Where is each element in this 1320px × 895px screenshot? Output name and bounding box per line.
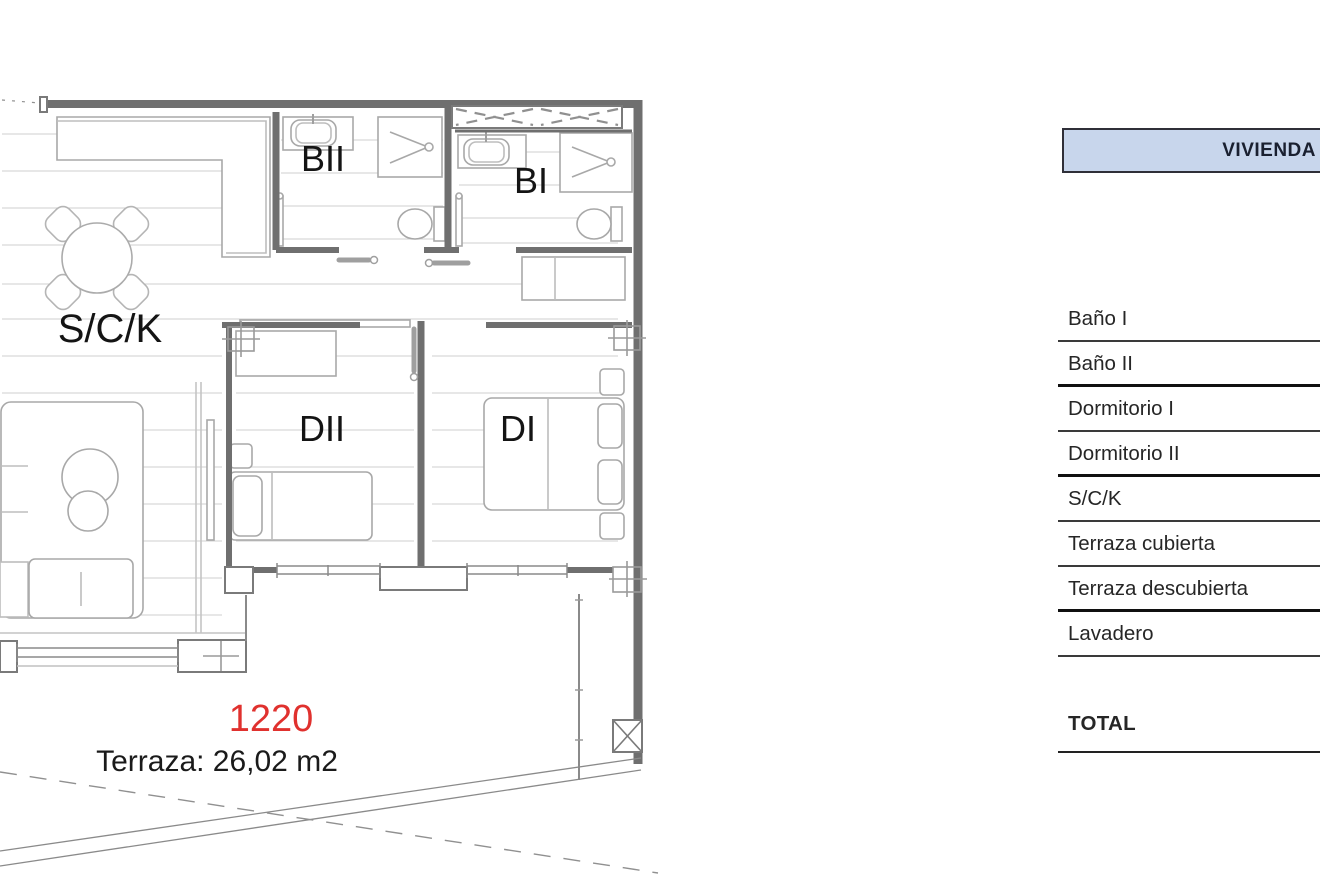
table-row-total: TOTAL — [1058, 702, 1320, 753]
dresser — [236, 331, 336, 376]
nightstand — [600, 513, 624, 539]
nightstand — [600, 369, 624, 395]
room-label-bed2: DII — [299, 408, 345, 449]
bedroom2-door — [411, 329, 418, 381]
table-row: Baño II — [1058, 342, 1320, 387]
bathroom2-door — [339, 257, 378, 264]
pillow — [598, 460, 622, 504]
shower — [378, 117, 442, 177]
bedroom1-window — [467, 563, 567, 578]
bedroom1-furniture — [484, 369, 624, 539]
drain-box — [613, 720, 642, 752]
table-row: Dormitorio I — [1058, 387, 1320, 432]
table-row: Terraza cubierta — [1058, 522, 1320, 567]
terrace-area-note: Terraza: 26,02 m2 — [96, 745, 338, 778]
table-row: Dormitorio II — [1058, 432, 1320, 477]
towel-rail — [456, 193, 462, 246]
bathroom1-door — [426, 260, 469, 267]
room-label-bath2: BII — [301, 138, 345, 179]
bedroom2-window — [277, 563, 380, 578]
table-row: Baño I — [1058, 297, 1320, 342]
pillow — [233, 476, 262, 536]
shower — [560, 133, 632, 192]
terrace — [0, 594, 642, 866]
dining-table — [62, 223, 132, 293]
unit-number: 1220 — [229, 698, 314, 740]
living-window — [17, 644, 178, 666]
bathroom2-fixtures — [277, 114, 445, 246]
table-row: Terraza descubierta — [1058, 567, 1320, 612]
installation-shaft-hatch — [452, 106, 622, 128]
room-label-bath1: BI — [514, 160, 548, 201]
room-label-living: S/C/K — [58, 307, 163, 351]
table-row: S/C/K — [1058, 477, 1320, 522]
pillow — [598, 404, 622, 448]
toilet — [398, 207, 445, 241]
ottoman — [68, 491, 108, 531]
toilet — [577, 207, 622, 241]
table-row: Lavadero — [1058, 612, 1320, 657]
hall-closet — [522, 257, 625, 300]
nightstand — [230, 444, 252, 468]
room-label-bed1: DI — [500, 408, 536, 449]
sofa — [0, 402, 143, 618]
table-header-vivienda: VIVIENDA — [1062, 128, 1320, 173]
side-shelf — [207, 420, 214, 540]
